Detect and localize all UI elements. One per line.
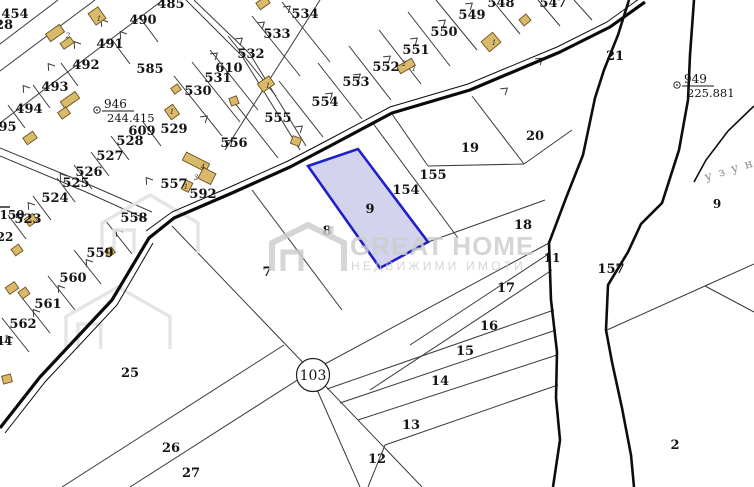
building xyxy=(171,84,182,94)
parcel-label: 150 xyxy=(0,208,25,222)
parcel-label: 548 xyxy=(487,0,514,11)
building xyxy=(23,131,37,144)
parcel-label: 550 xyxy=(430,25,457,40)
parcel-label: 20 xyxy=(526,129,544,144)
parcel-label: 485 xyxy=(157,0,184,12)
parcel-label: 562 xyxy=(9,317,36,332)
parcel-label: 555 xyxy=(264,111,291,126)
parcel-label: 552 xyxy=(372,60,399,75)
parcel-label: 21 xyxy=(606,49,624,64)
parcel-label: 558 xyxy=(120,211,147,226)
parcel-label: 560 xyxy=(59,271,86,286)
parcel-label: 610 xyxy=(215,61,242,76)
parcel-label: 492 xyxy=(72,58,99,73)
building xyxy=(5,282,19,295)
watermark: GREAT HOMEНЕДВИЖИМИ ИМОТИ xyxy=(272,225,534,273)
parcel-label: 554 xyxy=(311,95,338,110)
parcel-label: 609 xyxy=(128,124,155,139)
building xyxy=(519,14,531,26)
benchmark-label: 949225.881 xyxy=(674,72,735,100)
building xyxy=(58,107,71,119)
parcel-label: 26 xyxy=(162,441,180,456)
parcel-label: 27 xyxy=(182,466,200,481)
parcel-label: 25 xyxy=(121,366,139,381)
building xyxy=(2,374,13,384)
parcel-label: 592 xyxy=(189,187,216,202)
river xyxy=(549,0,754,487)
parcel-label: 22 xyxy=(0,230,13,244)
parcel-label: 17 xyxy=(497,281,515,296)
parcel-label: 532 xyxy=(237,47,264,62)
parcel-label: 495 xyxy=(0,120,17,135)
parcel-label: 493 xyxy=(41,80,68,95)
parcel-label: 529 xyxy=(160,122,187,137)
parcel-label: 533 xyxy=(263,27,290,42)
parcel-label: 549 xyxy=(458,8,485,23)
parcel-label: 524 xyxy=(41,191,68,206)
parcel-label: 11 xyxy=(544,251,561,265)
circled-parcel-label: 103 xyxy=(300,368,327,384)
parcel-circle-103: 103 xyxy=(297,359,330,392)
parcel-label: 14 xyxy=(431,374,449,389)
building xyxy=(18,287,30,299)
parcel-label: 490 xyxy=(129,13,156,28)
parcel-label: 9 xyxy=(365,202,374,217)
parcel-label: 28 xyxy=(0,18,13,33)
parcel-label: 551 xyxy=(402,43,429,58)
parcel-label: 559 xyxy=(86,246,113,261)
building-number: 4 xyxy=(200,163,205,171)
building-number: 1 xyxy=(266,82,270,90)
parcel-label: 530 xyxy=(184,84,211,99)
parcel-label: 13 xyxy=(402,418,420,433)
building xyxy=(11,244,23,256)
parcel-label: 44 xyxy=(0,334,12,348)
building-number: 1 xyxy=(184,183,188,191)
building-number: 1 xyxy=(97,15,101,23)
parcel-label: 16 xyxy=(480,319,498,334)
building xyxy=(256,0,270,10)
parcel-label: 526 xyxy=(75,165,102,180)
parcel-label: 2 xyxy=(670,438,679,453)
parcel-label: 491 xyxy=(96,37,123,52)
parcel-label: 561 xyxy=(34,297,61,312)
building xyxy=(290,136,301,147)
building-number: 1 xyxy=(412,65,416,73)
cadastral-map: 1034542848549049149249349449558553053161… xyxy=(0,0,754,487)
parcel-label: 527 xyxy=(96,149,123,164)
benchmark-elevation: 225.881 xyxy=(687,86,735,100)
benchmark-id: 946 xyxy=(104,97,127,111)
building-number: 1 xyxy=(170,108,174,116)
parcel-label: 154 xyxy=(392,183,419,198)
watermark-subtitle: НЕДВИЖИМИ ИМОТИ xyxy=(351,259,526,273)
parcel-label: 12 xyxy=(368,452,386,467)
benchmark-id: 949 xyxy=(684,72,707,86)
benchmark-elevation: 244.415 xyxy=(107,111,155,125)
parcel-label: 9 xyxy=(713,197,721,211)
parcel-label: 19 xyxy=(461,141,479,156)
building-number: 2 xyxy=(65,32,71,40)
parcel-label: 157 xyxy=(597,262,624,277)
building xyxy=(45,24,64,41)
parcel-label: 534 xyxy=(291,7,318,22)
building-number: 2 xyxy=(401,60,407,68)
building-number: 1 xyxy=(492,39,496,47)
benchmark-label: 946244.415 xyxy=(94,97,155,125)
parcel-label: 585 xyxy=(136,62,163,77)
river-name-label: узун xyxy=(703,154,754,184)
parcel-label: 553 xyxy=(342,75,369,90)
watermark-brand: GREAT HOME xyxy=(350,231,534,261)
parcel-label: 547 xyxy=(539,0,566,11)
map-canvas: 1034542848549049149249349449558553053161… xyxy=(0,0,754,487)
building-number: 3 xyxy=(194,174,199,182)
building xyxy=(229,96,239,106)
parcel-label: 494 xyxy=(15,102,42,117)
parcel-label: 155 xyxy=(419,168,446,183)
parcel-label: 15 xyxy=(456,344,474,359)
parcel-label: 556 xyxy=(220,136,247,151)
